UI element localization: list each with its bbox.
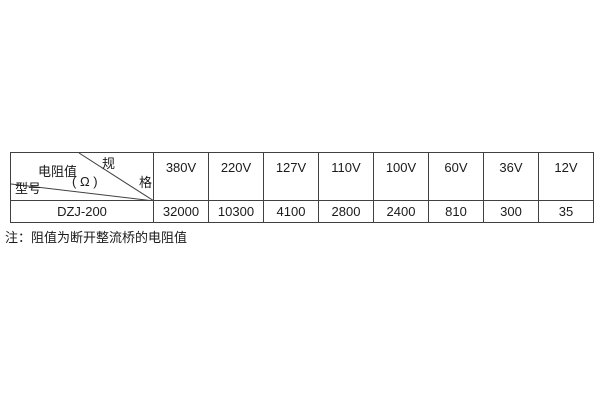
spec-table: 规 格 电阻值 ( Ω ) 型号 380V 220V 127V 110V 100… bbox=[10, 152, 594, 223]
column-header-100v: 100V bbox=[374, 153, 429, 201]
value-cell-100v: 2400 bbox=[374, 201, 429, 223]
value-cell-36v: 300 bbox=[484, 201, 539, 223]
column-header-36v: 36V bbox=[484, 153, 539, 201]
column-header-110v: 110V bbox=[319, 153, 374, 201]
value-cell-110v: 2800 bbox=[319, 201, 374, 223]
corner-label-spec-bottom: 格 bbox=[139, 176, 152, 189]
value-cell-12v: 35 bbox=[539, 201, 594, 223]
column-header-60v: 60V bbox=[429, 153, 484, 201]
column-header-220v: 220V bbox=[209, 153, 264, 201]
model-cell: DZJ-200 bbox=[11, 201, 154, 223]
value-cell-60v: 810 bbox=[429, 201, 484, 223]
page: 规 格 电阻值 ( Ω ) 型号 380V 220V 127V 110V 100… bbox=[0, 0, 600, 400]
corner-label-resistance-unit: ( Ω ) bbox=[72, 175, 98, 188]
corner-label-model: 型号 bbox=[15, 182, 41, 195]
value-cell-127v: 4100 bbox=[264, 201, 319, 223]
corner-label-spec-top: 规 bbox=[102, 157, 115, 170]
corner-header-cell: 规 格 电阻值 ( Ω ) 型号 bbox=[11, 153, 154, 201]
footnote: 注：阻值为断开整流桥的电阻值 bbox=[5, 227, 187, 246]
value-cell-220v: 10300 bbox=[209, 201, 264, 223]
column-header-380v: 380V bbox=[154, 153, 209, 201]
column-header-127v: 127V bbox=[264, 153, 319, 201]
value-cell-380v: 32000 bbox=[154, 201, 209, 223]
column-header-12v: 12V bbox=[539, 153, 594, 201]
